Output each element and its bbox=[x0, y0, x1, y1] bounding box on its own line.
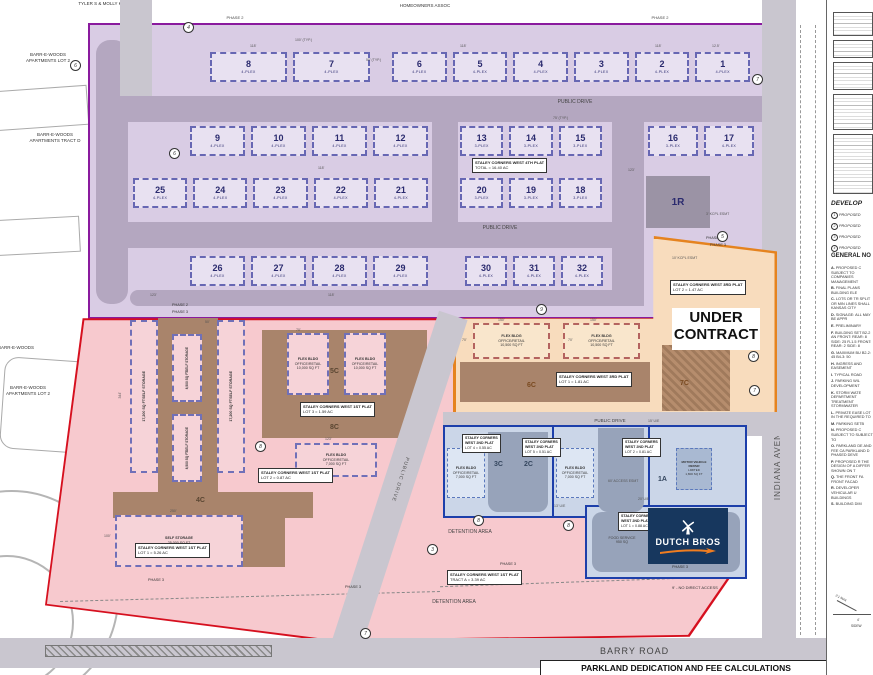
barry-road-label: BARRY ROAD bbox=[600, 646, 669, 656]
phase3-line-label-1: PHASE 3 bbox=[148, 578, 164, 582]
no-direct-access-note: 9' - NO DIRECT ACCESS bbox=[672, 585, 718, 590]
development-item: 3PROPOSED bbox=[831, 234, 873, 241]
residential-lot: 64-PLEX bbox=[392, 52, 447, 82]
dim-label: 150' bbox=[498, 318, 505, 322]
general-note: J. PARKING WIL DEVELOPMENT bbox=[831, 379, 873, 388]
general-note: M. PARKING SETB bbox=[831, 422, 873, 427]
keynote-circle: 8 bbox=[563, 520, 574, 531]
zone-label-3c: 3C bbox=[494, 461, 503, 468]
residential-lot: 54-PLEX bbox=[453, 52, 508, 82]
zone-label-1a: 1A bbox=[658, 476, 667, 483]
orange-7c-building bbox=[662, 345, 730, 411]
dim-label: 250' bbox=[170, 509, 177, 513]
residential-lot: 274-PLEX bbox=[251, 256, 306, 286]
sidebar-table-1 bbox=[833, 12, 873, 36]
lot-1r-label: 1R bbox=[672, 197, 685, 208]
dim-label: 20' U/E bbox=[638, 497, 649, 501]
keynote-circle: 7 bbox=[360, 628, 371, 639]
plat1-lot1-box: STALEY CORNERS WEST 1ST PLAT LOT 1 = 5.2… bbox=[135, 543, 210, 558]
phase2-label-right: PHASE 2 bbox=[640, 16, 680, 21]
residential-lot: 324-PLEX bbox=[561, 256, 603, 286]
parkland-title-box: PARKLAND DEDICATION AND FEE CALCULATIONS bbox=[540, 660, 832, 675]
residential-lot: 14-PLEX bbox=[695, 52, 750, 82]
keynote-circle: 4 bbox=[183, 22, 194, 33]
residential-lot: 34-PLEX bbox=[574, 52, 629, 82]
general-note: G. MAXIMUM BU B2-2: 45 B4-3: 50 bbox=[831, 351, 873, 360]
dim-label: 12.5' bbox=[712, 44, 719, 48]
residential-lot: 74-PLEX bbox=[293, 52, 370, 82]
zone-label-8c: 8C bbox=[330, 424, 339, 431]
detention-area-4: DETENTION AREA bbox=[432, 600, 476, 606]
development-item: 4PROPOSED bbox=[831, 245, 873, 252]
neighbor-label-woods: BARR-E-WOODS bbox=[0, 345, 46, 351]
general-note: L. PRIVATE EASE LOT IN THE REQUIRED TO bbox=[831, 411, 873, 420]
dim-label: 50' bbox=[205, 320, 210, 324]
general-note: H. INGRESS AND EASEMENT bbox=[831, 362, 873, 371]
dutch-bros-wordmark: DUTCH BROS bbox=[656, 537, 721, 547]
public-drive-top bbox=[96, 96, 764, 122]
general-notes-list: A. PROPOSED C SUBJECT TO COMPANIES MANAG… bbox=[831, 266, 873, 509]
sidebar-table-2 bbox=[833, 40, 873, 58]
detention-area-3: DETENTION AREA bbox=[448, 530, 492, 536]
zone-label-5c: 5C bbox=[330, 368, 339, 375]
development-heading: DEVELOP bbox=[831, 200, 862, 207]
lot-1r-building: 1R bbox=[646, 176, 710, 228]
residential-lot: 284-PLEX bbox=[312, 256, 367, 286]
purple-cross-road-right bbox=[612, 96, 644, 306]
development-item: 1PROPOSED bbox=[831, 212, 873, 219]
public-drive-label-top: PUBLIC DRIVE bbox=[545, 100, 605, 106]
phase3-boundary-label-right: PHASE 3 bbox=[710, 243, 726, 247]
dim-label: 70' bbox=[462, 338, 467, 342]
dim-label: 100' bbox=[104, 534, 111, 538]
residential-lot: 114-PLEX bbox=[312, 126, 367, 156]
dim-label: 123' bbox=[325, 437, 332, 441]
development-item: 2PROPOSED bbox=[831, 223, 873, 230]
north-entrance-road bbox=[120, 0, 152, 96]
residential-lot: 264-PLEX bbox=[190, 256, 245, 286]
sidebar-table-3 bbox=[833, 62, 873, 90]
residential-lot: 304-PLEX bbox=[465, 256, 507, 286]
neighbor-parcel-outline bbox=[0, 216, 81, 257]
self-storage-17200-west: SELF STORAGE 17,200 SQ FT bbox=[130, 320, 158, 473]
dim-label: 118' bbox=[328, 293, 334, 297]
sidewalk-label: SIDEW bbox=[851, 624, 861, 628]
keynote-circle: 8 bbox=[255, 441, 266, 452]
neighbor-label-barr-lot2-low: BARR-E-WOODS APARTMENTS LOT 2 bbox=[0, 385, 58, 396]
self-storage-8500-north: SELF STORAGE 8,500 SQ FT bbox=[172, 334, 202, 402]
plat2-lot5-box: STALEY CORNERS WEST 2ND PLAT LOT 5 = 0.5… bbox=[522, 438, 561, 457]
keynote-circle: 6 bbox=[169, 148, 180, 159]
lot-row-2-far: 163-PLEX174-PLEX bbox=[648, 126, 754, 156]
residential-lot: 214-PLEX bbox=[374, 178, 428, 208]
public-drive-bottom bbox=[130, 290, 642, 306]
general-note: C. LOTS OR TR SPLIT OR MIN LINES SHALL K… bbox=[831, 297, 873, 311]
general-note: I. TYPICAL ROAD bbox=[831, 373, 873, 378]
phase3-line-label-2: PHASE 3 bbox=[345, 585, 361, 589]
dim-label: 344' bbox=[118, 392, 122, 399]
purple-cross-road bbox=[432, 96, 458, 248]
survey-line bbox=[800, 25, 801, 635]
general-note: A. PROPOSED C SUBJECT TO COMPANIES MANAG… bbox=[831, 266, 873, 284]
notes-sidebar: DEVELOP 1PROPOSED 2PROPOSED 3PROPOSED 4P… bbox=[826, 0, 873, 675]
plat1-tracta-box: STALEY CORNERS WEST 1ST PLAT TRACT A = 3… bbox=[447, 570, 522, 585]
keynote-circle: 9 bbox=[536, 304, 547, 315]
residential-lot: 143-PLEX bbox=[509, 126, 552, 156]
under-contract-banner: UNDER CONTRACT bbox=[672, 308, 760, 350]
phase3-boundary-label: PHASE 3 bbox=[172, 310, 188, 314]
keynote-circle: 6 bbox=[70, 60, 81, 71]
general-note: F. BUILDING SET B2-2 AN FRONT: REAR: 8 S… bbox=[831, 331, 873, 349]
neighbor-label-hoa: HOMEOWNERS ASSOC bbox=[395, 3, 455, 9]
plat4-box: STALEY CORNERS WEST 4TH PLAT TOTAL = 16.… bbox=[472, 158, 547, 173]
residential-lot: 174-PLEX bbox=[704, 126, 754, 156]
public-drive-diagonal-label: PUBLIC DRIVE bbox=[390, 456, 410, 502]
dim-label: 13' U/E bbox=[554, 504, 565, 508]
general-note: D. SIGNAGE: ALL MAY BE APPR bbox=[831, 313, 873, 322]
general-note: E. PRELIMINARY bbox=[831, 324, 873, 329]
general-note: N. PROPOSED C SUBJECT TO SUBJECT TO bbox=[831, 428, 873, 442]
flex-bldg-10000-west: FLEX BLDG OFFICE/RETAIL 10,000 SQ FT bbox=[287, 333, 329, 395]
keynote-circle: 3 bbox=[427, 544, 438, 555]
phase3-line-label-3: PHASE 3 bbox=[500, 562, 516, 566]
keynote-circle: 7 bbox=[749, 385, 760, 396]
residential-lot: 104-PLEX bbox=[251, 126, 306, 156]
residential-lot: 234-PLEX bbox=[253, 178, 307, 208]
dim-label: 10' KCPL ESMT bbox=[672, 256, 697, 260]
self-storage-8500-south: SELF STORAGE 8,500 SQ FT bbox=[172, 414, 202, 482]
dim-label: 118' bbox=[655, 44, 661, 48]
neighbor-label-barr-tractd: BARR-E-WOODS APARTMENTS TRACT D bbox=[25, 132, 85, 143]
keynote-circle: 8 bbox=[473, 515, 484, 526]
residential-lot: 183-PLEX bbox=[559, 178, 602, 208]
windmill-icon bbox=[679, 518, 697, 536]
flex-bldg-7000-2c: FLEX BLDG OFFICE/RETAIL 7,000 SQ FT bbox=[556, 448, 594, 498]
lot-row-4-right: 304-PLEX314-PLEX324-PLEX bbox=[465, 256, 603, 286]
residential-lot: 94-PLEX bbox=[190, 126, 245, 156]
residential-lot: 193-PLEX bbox=[509, 178, 552, 208]
zone-label-4c: 4C bbox=[196, 497, 205, 504]
lot-row-4-left: 264-PLEX274-PLEX284-PLEX294-PLEX bbox=[190, 256, 428, 286]
flex-bldg-10000-east: FLEX BLDG OFFICE/RETAIL 10,000 SQ FT bbox=[344, 333, 386, 395]
dim-label: 123' bbox=[150, 293, 157, 297]
neighbor-parcel-outline bbox=[0, 85, 89, 131]
general-note: O. PARKLAND DE AND FEE CA PARKLAND D PHA… bbox=[831, 444, 873, 458]
residential-lot: 84-PLEX bbox=[210, 52, 287, 82]
residential-lot: 163-PLEX bbox=[648, 126, 698, 156]
general-note: K. STORM WATE DEPARTMENT TREATMENT STORM… bbox=[831, 391, 873, 409]
dim-label: 118' bbox=[250, 44, 256, 48]
general-note: B. FINAL PLANS BUILDING ELE bbox=[831, 286, 873, 295]
lot-row-1-left: 84-PLEX74-PLEX bbox=[210, 52, 370, 82]
keynote-circle: 7 bbox=[752, 74, 763, 85]
phase3-line-label-4: PHASE 3 bbox=[672, 565, 688, 569]
plat1-lot2-box: STALEY CORNERS WEST 1ST PLAT LOT 2 = 0.8… bbox=[258, 468, 333, 483]
general-note: Q. THE FRONT FA FRONT FACAD bbox=[831, 475, 873, 484]
public-drive-mid bbox=[96, 222, 644, 248]
residential-lot: 153-PLEX bbox=[559, 126, 602, 156]
residential-lot: 133-PLEX bbox=[460, 126, 503, 156]
phase2-boundary-label: PHASE 2 bbox=[172, 303, 188, 307]
dim-label: 3' KCPL ESMT bbox=[706, 212, 729, 216]
phase2-label-left: PHASE 2 bbox=[215, 16, 255, 21]
residential-lot: 254-PLEX bbox=[133, 178, 187, 208]
site-plan-canvas: TYLER S & MOLLY K BARR-E-WOODS APARTMENT… bbox=[0, 0, 873, 675]
residential-lot: 44-PLEX bbox=[513, 52, 568, 82]
sidebar-table-5 bbox=[833, 134, 873, 194]
lot-row-2-left: 94-PLEX104-PLEX114-PLEX124-PLEX bbox=[190, 126, 428, 156]
zone-label-6c: 6C bbox=[527, 382, 536, 389]
residential-lot: 244-PLEX bbox=[193, 178, 247, 208]
plat3-lot2-box: STALEY CORNERS WEST 3RD PLAT LOT 2 = 1.4… bbox=[670, 280, 746, 295]
general-notes-heading: GENERAL NO bbox=[831, 253, 871, 259]
lot-row-1-right: 64-PLEX54-PLEX44-PLEX34-PLEX24-PLEX14-PL… bbox=[392, 52, 750, 82]
dim-label: 50' (TYP.) bbox=[366, 58, 381, 62]
residential-lot: 294-PLEX bbox=[373, 256, 428, 286]
flex-bldg-7000-3c: FLEX BLDG OFFICE/RETAIL 7,000 SQ FT bbox=[447, 448, 485, 498]
self-storage-17200-east: SELF STORAGE 17,200 SQ FT bbox=[217, 320, 245, 473]
dutch-bros-arrow-icon bbox=[658, 547, 718, 555]
dim-label: 150' bbox=[590, 318, 597, 322]
lot-row-3-right: 203-PLEX193-PLEX183-PLEX bbox=[460, 178, 602, 208]
zone-label-2c: 2C bbox=[524, 461, 533, 468]
survey-line bbox=[815, 25, 816, 635]
width-label: 4' bbox=[857, 618, 859, 622]
public-drive-label-lower: PUBLIC DRIVE bbox=[580, 418, 640, 423]
general-note: R. DEVELOPER VEHICULAR U BUILDINGS bbox=[831, 486, 873, 500]
neighbor-label-barr-lot2: BARR-E-WOODS APARTMENTS LOT 2 bbox=[18, 52, 78, 63]
dim-label: 75' (TYP.) bbox=[553, 116, 568, 120]
barry-road-median-hatch bbox=[45, 645, 272, 657]
residential-lot: 203-PLEX bbox=[460, 178, 503, 208]
residential-lot: 314-PLEX bbox=[513, 256, 555, 286]
dim-label: 123' bbox=[628, 168, 635, 172]
residential-lot: 24-PLEX bbox=[635, 52, 690, 82]
food-service-label: FOOD SERVICE 950 SQ bbox=[600, 536, 644, 544]
zone-label-7c: 7C bbox=[680, 380, 689, 387]
motor-vehicle-repair-bldg: MOTOR VEHICLE REPAIR LIMITED 1,800 SQ FT bbox=[676, 448, 712, 490]
sidebar-table-4 bbox=[833, 94, 873, 130]
dim-label: 118' bbox=[460, 44, 466, 48]
dutch-bros-logo: DUTCH BROS bbox=[648, 508, 728, 564]
dim-label: 100' (TYP.) bbox=[295, 38, 312, 42]
plat2-lot4-box: STALEY CORNERS WEST 2ND PLAT LOT 4 = 0.5… bbox=[462, 434, 501, 453]
residential-lot: 224-PLEX bbox=[314, 178, 368, 208]
dim-label: 60' ACCESS ESMT bbox=[608, 479, 638, 483]
dim-label: 15' U/E bbox=[648, 419, 659, 423]
general-note: S. BUILDING DIM bbox=[831, 502, 873, 507]
flex-bldg-10500-east: FLEX BLDG OFFICE/RETAIL 10,500 SQ FT bbox=[563, 323, 640, 359]
keynote-circle: 8 bbox=[748, 351, 759, 362]
plat1-lot3-box: STALEY CORNERS WEST 1ST PLAT LOT 3 = 1.5… bbox=[300, 402, 375, 417]
sidewalk-detail-sketch: 2:1 MAX 4' SIDEW bbox=[833, 592, 871, 634]
plat3-lot1-box: STALEY CORNERS WEST 3RD PLAT LOT 1 = 1.8… bbox=[556, 372, 632, 387]
residential-lot: 124-PLEX bbox=[373, 126, 428, 156]
public-drive-label-mid: PUBLIC DRIVE bbox=[470, 226, 530, 232]
general-note: P. PROPOSED R THE DESIGN OF A DIFFER SHO… bbox=[831, 460, 873, 474]
lot-row-2-right: 133-PLEX143-PLEX153-PLEX bbox=[460, 126, 602, 156]
dim-label: 70' bbox=[568, 338, 573, 342]
flex-bldg-10500-west: FLEX BLDG OFFICE/RETAIL 10,500 SQ FT bbox=[473, 323, 550, 359]
development-items: 1PROPOSED 2PROPOSED 3PROPOSED 4PROPOSED bbox=[831, 212, 873, 256]
lot-row-3-left: 254-PLEX244-PLEX234-PLEX224-PLEX214-PLEX bbox=[133, 178, 428, 208]
dim-label: 118' bbox=[318, 166, 324, 170]
self-storage-25000: SELF STORAGE 25,000 SQ FT bbox=[115, 515, 243, 567]
dim-label: 70' bbox=[296, 328, 301, 332]
keynote-circle: 5 bbox=[717, 231, 728, 242]
storage-dock bbox=[243, 515, 285, 567]
plat2-lot2-box: STALEY CORNERS WEST 2ND PLAT LOT 2 = 0.8… bbox=[622, 438, 661, 457]
